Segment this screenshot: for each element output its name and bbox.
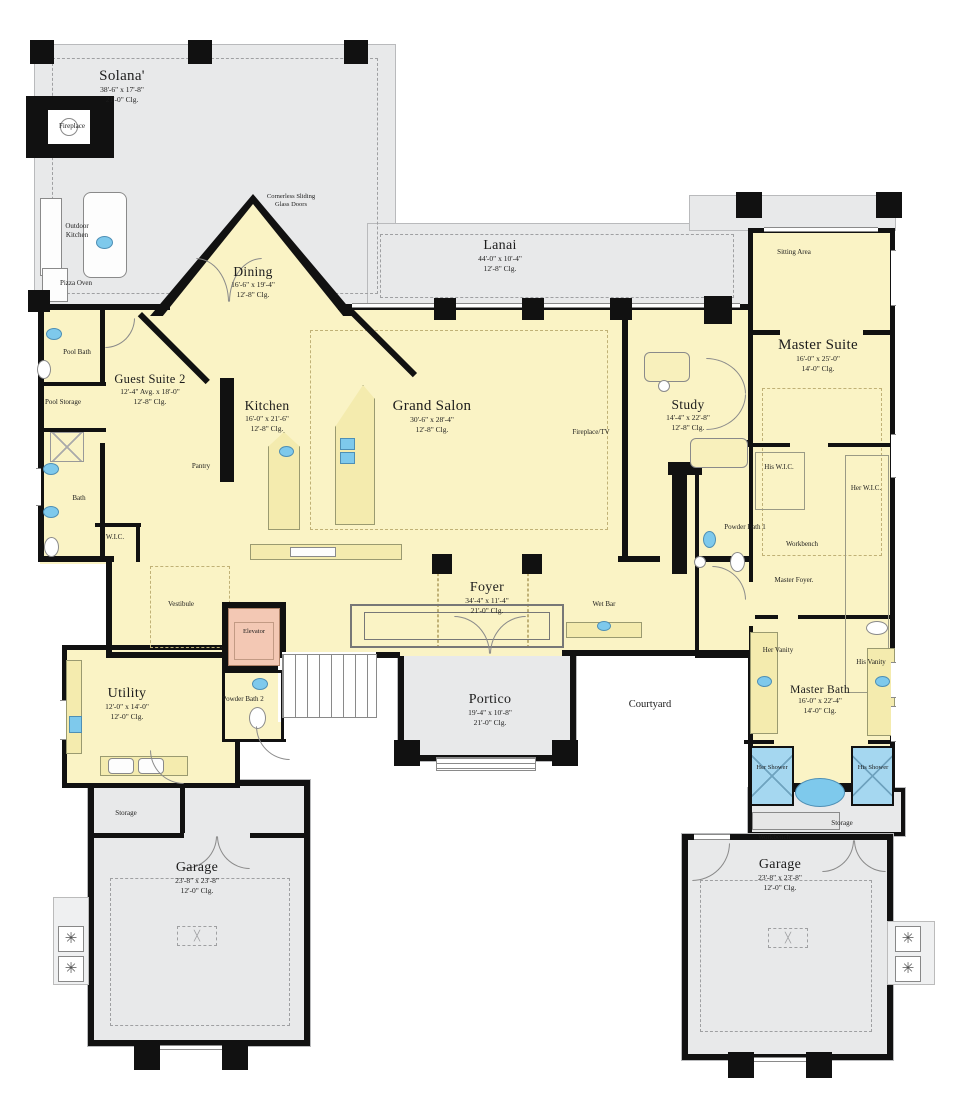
column bbox=[30, 40, 54, 64]
his-shower-stall bbox=[851, 746, 894, 806]
window bbox=[694, 834, 730, 840]
master-porch-area bbox=[690, 196, 895, 230]
ceiling-line bbox=[110, 878, 290, 1026]
kitchen-counter-panel bbox=[290, 547, 336, 557]
salon-fireplace-ring bbox=[694, 556, 706, 568]
study-desk-1 bbox=[644, 352, 690, 382]
label-powder-bath-2: Powder Bath 2 bbox=[221, 695, 265, 704]
wall bbox=[95, 523, 141, 527]
label-his-shower: His Shower bbox=[849, 764, 897, 772]
outdoor-sink bbox=[96, 236, 113, 249]
column bbox=[344, 40, 368, 64]
column bbox=[28, 290, 50, 312]
ceiling-line bbox=[700, 880, 872, 1032]
master-tub bbox=[795, 778, 845, 807]
wall bbox=[748, 443, 790, 447]
sink bbox=[43, 463, 59, 475]
stair-flight bbox=[282, 654, 377, 718]
her-shower-stall bbox=[750, 746, 794, 806]
ac-fan: ✳ bbox=[58, 926, 84, 952]
label-master-foyer: Master Foyer. bbox=[770, 576, 818, 585]
room-label-portico: Portico 19'-4" x 10'-8" 21'-0" Clg. bbox=[420, 692, 560, 728]
label-sitting-area: Sitting Area bbox=[763, 248, 825, 257]
room-label-master-suite: Master Suite 16'-0" x 25'-0" 14'-0" Clg. bbox=[748, 337, 888, 374]
label-wet-bar: Wet Bar bbox=[583, 600, 625, 609]
label-pizza-oven: Pizza Oven bbox=[48, 279, 104, 288]
sink bbox=[703, 531, 716, 548]
wall bbox=[376, 652, 400, 658]
door-opening bbox=[748, 582, 755, 626]
label-fireplace: Fireplace bbox=[47, 122, 97, 131]
his-wic-shelves bbox=[755, 452, 805, 510]
sink bbox=[252, 678, 268, 690]
window bbox=[352, 303, 740, 308]
column bbox=[728, 1052, 754, 1078]
wall bbox=[38, 304, 44, 562]
label-his-wic: His W.I.C. bbox=[755, 463, 803, 472]
label-her-vanity: Her Vanity bbox=[752, 646, 804, 655]
column bbox=[434, 298, 456, 320]
label-cornerless-doors: Cornerless Sliding Glass Doors bbox=[260, 193, 322, 209]
window bbox=[891, 662, 896, 698]
study-chair bbox=[658, 380, 670, 392]
column bbox=[610, 298, 632, 320]
room-label-dining: Dining 16'-6" x 19'-4" 12'-8" Clg. bbox=[183, 264, 323, 300]
garage-right-column-marker: ╳ bbox=[768, 928, 808, 948]
door-arc bbox=[256, 726, 290, 760]
room-label-kitchen: Kitchen 16'-0" x 21'-6" 12'-8" Clg. bbox=[197, 398, 337, 434]
wall bbox=[863, 330, 895, 335]
room-label-utility: Utility 12'-0" x 14'-0" 12'-0" Clg. bbox=[57, 686, 197, 722]
label-pool-bath: Pool Bath bbox=[58, 348, 96, 357]
room-label-study: Study 14'-4" x 22'-8" 12'-8" Clg. bbox=[618, 397, 758, 433]
column bbox=[188, 40, 212, 64]
sink bbox=[46, 328, 62, 340]
wall bbox=[748, 330, 780, 335]
room-label-garage-left: Garage 23'-8" x 23'-8" 12'-0" Clg. bbox=[127, 860, 267, 896]
column bbox=[806, 1052, 832, 1078]
wall bbox=[222, 670, 286, 673]
label-pool-storage: Pool Storage bbox=[44, 398, 82, 407]
room-label-master-bath: Master Bath 16'-0" x 22'-4" 14'-0" Clg. bbox=[750, 684, 890, 716]
fixture bbox=[340, 438, 355, 450]
fixture bbox=[340, 452, 355, 464]
window bbox=[160, 1045, 226, 1050]
label-elevator: Elevator bbox=[230, 628, 278, 636]
room-label-lanai: Lanai 44'-0" x 10'-4" 12'-8" Clg. bbox=[430, 238, 570, 274]
wall bbox=[618, 556, 660, 562]
room-label-foyer: Foyer 34'-4" x 11'-4" 21'-0" Clg. bbox=[417, 580, 557, 616]
column bbox=[394, 740, 420, 766]
column bbox=[522, 298, 544, 320]
sink bbox=[597, 621, 611, 631]
room-label-garage-right: Garage 23'-8" x 23'-8" 12'-0" Clg. bbox=[710, 857, 850, 893]
portico-steps bbox=[436, 757, 536, 771]
wall bbox=[828, 443, 895, 447]
label-fireplace-tv: Fireplace/TV bbox=[562, 428, 620, 437]
study-desk-2 bbox=[690, 438, 748, 468]
label-storage-left: Storage bbox=[98, 809, 154, 818]
utility-machine-1 bbox=[108, 758, 134, 774]
window bbox=[891, 434, 896, 478]
wall bbox=[94, 833, 184, 838]
wall bbox=[222, 670, 225, 742]
toilet bbox=[44, 537, 59, 557]
label-his-vanity: His Vanity bbox=[845, 658, 897, 667]
label-wic: W.I.C. bbox=[92, 533, 138, 542]
label-outdoor-kitchen: Outdoor Kitchen bbox=[56, 222, 98, 240]
garage-left-column-marker: ╳ bbox=[177, 926, 217, 946]
sink bbox=[43, 506, 59, 518]
wall bbox=[180, 786, 185, 833]
label-storage-right: Storage bbox=[818, 819, 866, 828]
label-courtyard: Courtyard bbox=[608, 698, 692, 711]
wall bbox=[250, 833, 306, 838]
window bbox=[764, 227, 878, 232]
wall bbox=[744, 740, 774, 744]
column bbox=[736, 192, 762, 218]
column bbox=[222, 1044, 248, 1070]
label-vestibule: Vestibule bbox=[155, 600, 207, 609]
sink bbox=[279, 446, 294, 457]
window bbox=[891, 250, 896, 306]
column bbox=[134, 1044, 160, 1070]
floor-plan: ╳ ╳ ✳ ✳ ✳ ✳ Solana' 38'-6" x 17'-8" 21'-… bbox=[0, 0, 960, 1113]
wall bbox=[100, 443, 105, 561]
ac-fan: ✳ bbox=[58, 956, 84, 982]
column bbox=[432, 554, 452, 574]
label-bath: Bath bbox=[59, 494, 99, 503]
column bbox=[552, 740, 578, 766]
label-her-shower: Her Shower bbox=[748, 764, 796, 772]
column bbox=[522, 554, 542, 574]
label-her-wic: Her W.I.C. bbox=[845, 484, 887, 493]
window bbox=[754, 1057, 808, 1062]
column bbox=[876, 192, 902, 218]
wall bbox=[136, 523, 140, 562]
room-label-solana: Solana' 38'-6" x 17'-8" 21'-0" Clg. bbox=[52, 68, 192, 105]
label-powder-bath-1: Powder Bath 1 bbox=[716, 523, 774, 532]
window bbox=[891, 706, 896, 742]
toilet bbox=[866, 621, 888, 635]
wall bbox=[622, 308, 628, 558]
label-workbench-1: Workbench bbox=[775, 540, 829, 549]
wall bbox=[106, 560, 112, 658]
wall bbox=[562, 650, 752, 656]
label-pantry: Pantry bbox=[178, 462, 224, 471]
powder-wing-area bbox=[695, 440, 753, 658]
salon-fireplace-mass bbox=[672, 474, 687, 574]
toilet bbox=[730, 552, 745, 572]
window bbox=[36, 468, 41, 506]
guest-shower bbox=[50, 432, 84, 462]
column bbox=[704, 296, 732, 324]
ac-fan: ✳ bbox=[895, 956, 921, 982]
room-label-grand-salon: Grand Salon 30'-6" x 28'-4" 12'-8" Clg. bbox=[362, 398, 502, 435]
label-workbench-2: Workbench bbox=[746, 833, 802, 842]
ac-fan: ✳ bbox=[895, 926, 921, 952]
toilet bbox=[37, 360, 51, 379]
